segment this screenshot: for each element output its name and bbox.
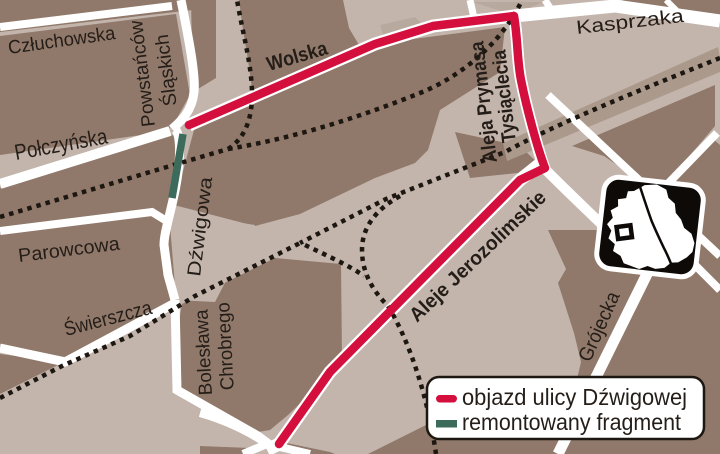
svg-text:remontowany fragment: remontowany fragment bbox=[462, 409, 682, 435]
svg-text:objazd ulicy Dźwigowej: objazd ulicy Dźwigowej bbox=[462, 384, 687, 410]
